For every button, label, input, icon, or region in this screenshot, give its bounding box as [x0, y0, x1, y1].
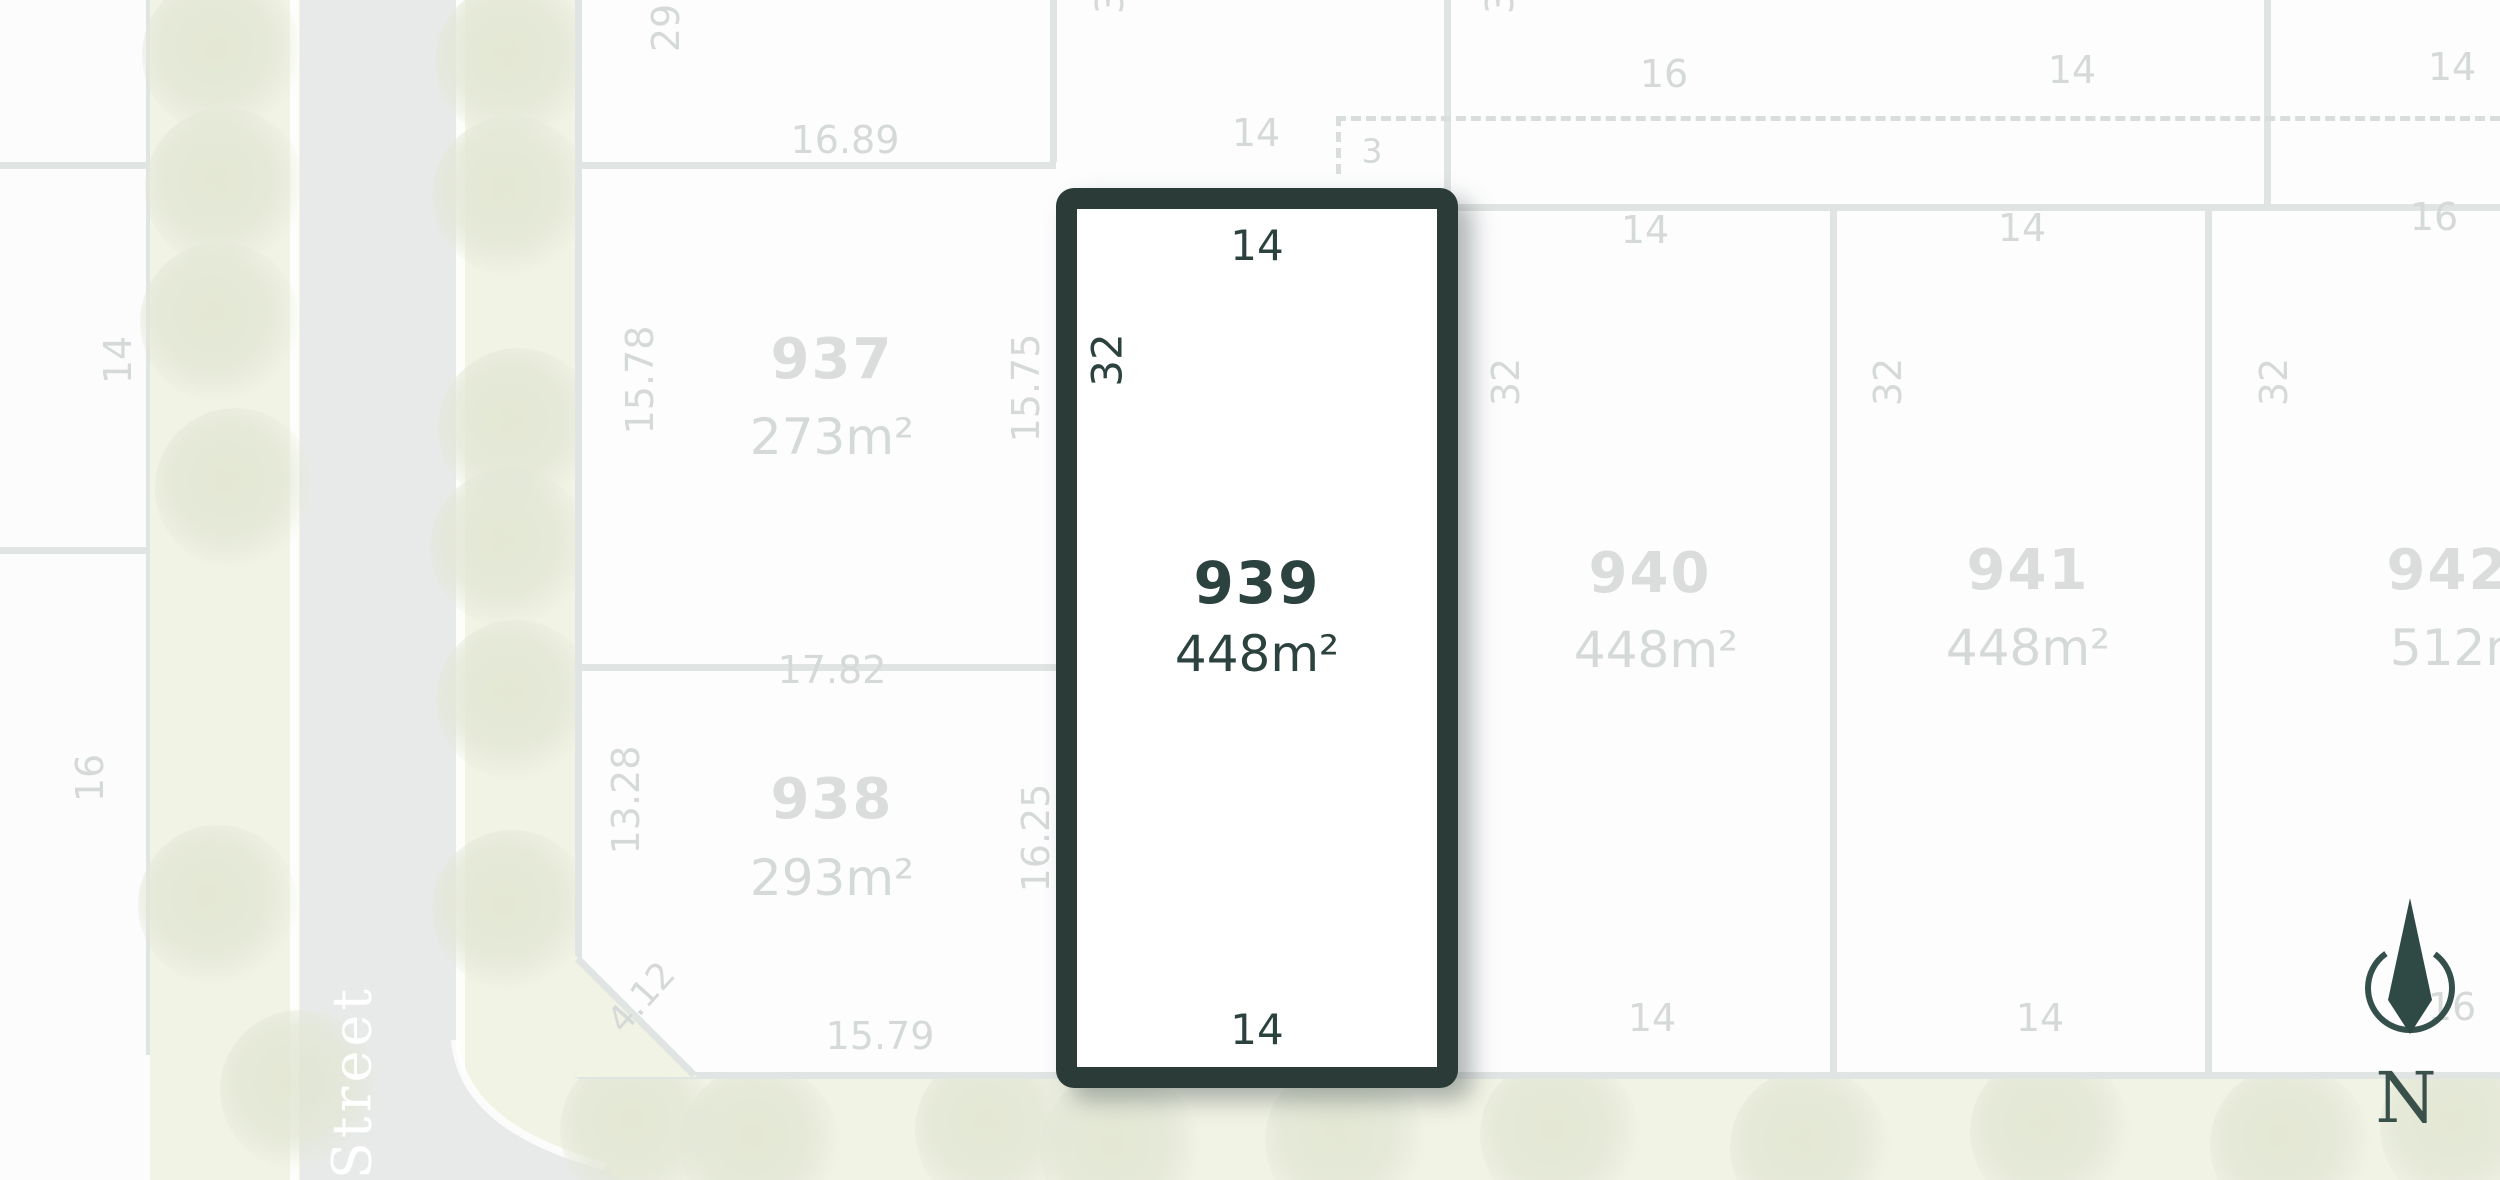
- dim-label: 15.75: [1007, 334, 1045, 443]
- dim-label: 16: [2410, 198, 2458, 236]
- dim-label: 32: [1487, 358, 1525, 406]
- lot-area-937: 273m²: [750, 412, 914, 462]
- lot-area-939: 448m²: [1175, 629, 1339, 679]
- dim-label: 14: [1232, 114, 1280, 152]
- dim-label: 16: [71, 754, 109, 802]
- lot-number-939: 939: [1193, 554, 1320, 612]
- dim-label: 15.78: [621, 326, 659, 435]
- west-lots-area: [0, 0, 150, 1180]
- dim-label: 16.89: [791, 121, 900, 159]
- easement-dashed-line: [1336, 116, 2500, 121]
- lot-area-941: 448m²: [1946, 623, 2110, 673]
- lot-area-938: 293m²: [750, 853, 914, 903]
- lot-boundary: [2205, 204, 2212, 1072]
- dim-label: 3: [1481, 0, 1519, 14]
- tree-icon: [430, 468, 590, 628]
- tree-icon: [436, 620, 596, 780]
- dim-label: 3: [1091, 0, 1129, 14]
- dim-label: 14: [1230, 1009, 1283, 1051]
- lot-boundary: [1830, 204, 1837, 1072]
- lot-boundary: [578, 1072, 2500, 1079]
- dim-label: 32: [2255, 358, 2293, 406]
- lot-number-942: 942: [2387, 543, 2500, 599]
- dim-label: 14: [2048, 51, 2096, 89]
- dim-label: 14: [1628, 999, 1676, 1037]
- lot-number-938: 938: [771, 772, 894, 828]
- dim-label: 17.82: [778, 651, 887, 689]
- dim-label: 14: [1621, 211, 1669, 249]
- lot-area-942: 512m²: [2390, 623, 2500, 673]
- street-name-label: Street: [321, 985, 384, 1179]
- compass-north-label: N: [2375, 1057, 2436, 1139]
- lot-boundary: [1458, 204, 2500, 211]
- dim-label: 15.79: [826, 1017, 935, 1055]
- west-lot-boundary: [0, 547, 153, 554]
- lot-number-937: 937: [771, 332, 894, 388]
- estate-lot-plan: 29 16.89 14 3 3 3 16 14 14 14 16 15.78 9…: [0, 0, 2500, 1180]
- tree-icon: [432, 830, 592, 990]
- dim-label: 16: [1640, 55, 1688, 93]
- dim-label: 14: [99, 336, 137, 384]
- dim-label: 13.28: [607, 746, 645, 855]
- dim-label: 14: [2016, 999, 2064, 1037]
- easement-dashed-line: [1336, 116, 1341, 174]
- west-lot-boundary: [0, 162, 153, 169]
- dim-label: 14: [1998, 209, 2046, 247]
- tree-icon: [140, 242, 300, 402]
- compass-icon: [2348, 888, 2478, 1058]
- dim-label: 14: [1230, 225, 1283, 267]
- lot-number-940: 940: [1589, 546, 1712, 602]
- lot-boundary: [578, 162, 1056, 169]
- tree-icon: [432, 116, 592, 276]
- lot-boundary: [2264, 0, 2271, 204]
- lot-region-939-highlighted[interactable]: 14 32 939 448m² 14: [1056, 188, 1458, 1088]
- dim-label: 29: [647, 4, 685, 52]
- dim-label: 32: [1087, 333, 1129, 386]
- dim-label: 14: [2428, 48, 2476, 86]
- dim-label: 32: [1869, 358, 1907, 406]
- compass-needle-icon: [2388, 898, 2432, 1034]
- lot-boundary: [1444, 0, 1451, 204]
- lot-number-941: 941: [1967, 543, 2090, 599]
- lot-boundary: [1050, 0, 1057, 162]
- tree-icon: [138, 825, 298, 985]
- lot-area-940: 448m²: [1574, 625, 1738, 675]
- dim-label: 16.25: [1017, 784, 1055, 893]
- dim-label: 3: [1362, 135, 1383, 168]
- tree-icon: [155, 408, 315, 568]
